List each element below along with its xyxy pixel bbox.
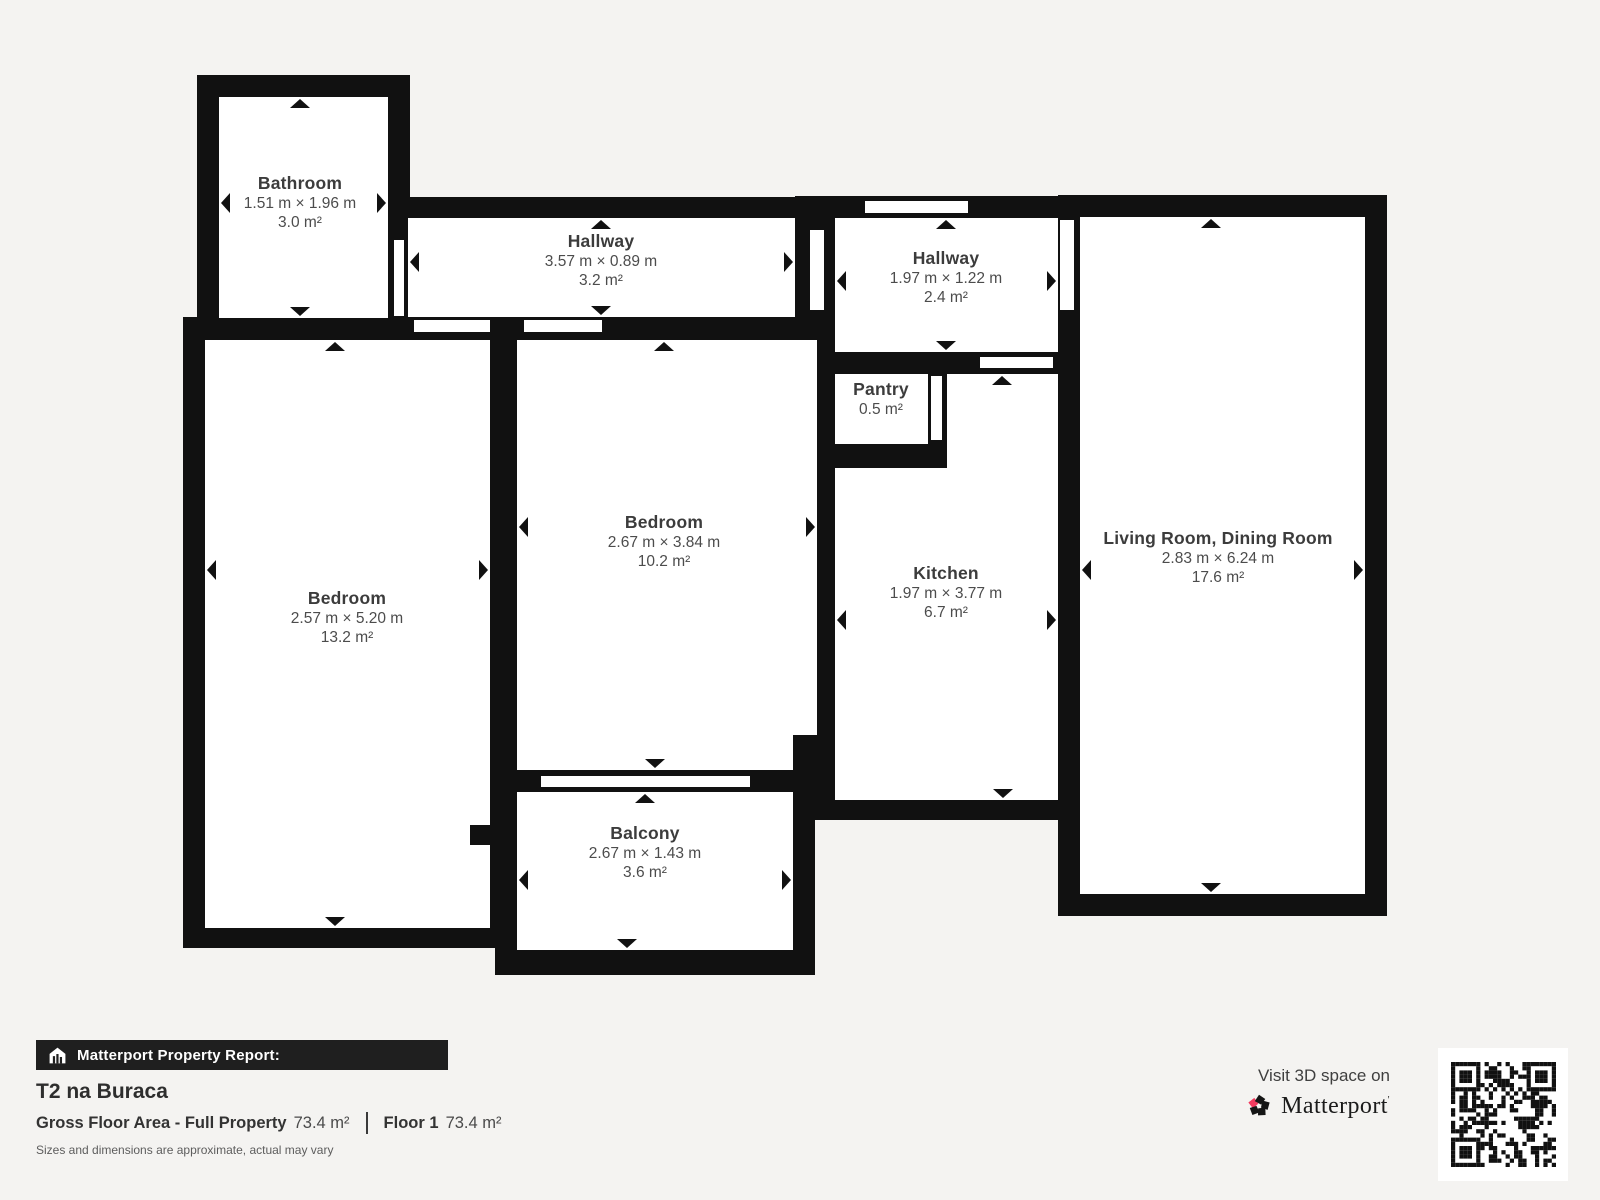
room-name: Kitchen xyxy=(890,563,1002,584)
room-area: 3.6 m² xyxy=(589,863,701,882)
room-name: Hallway xyxy=(545,231,657,252)
room-label-hallway-right: Hallway 1.97 m × 1.22 m 2.4 m² xyxy=(890,248,1002,307)
room-dims: 2.67 m × 3.84 m xyxy=(608,533,720,552)
floor-plan-rooms xyxy=(205,97,1365,950)
room-area: 2.4 m² xyxy=(890,288,1002,307)
room-dims: 1.97 m × 3.77 m xyxy=(890,584,1002,603)
room-dims: 3.57 m × 0.89 m xyxy=(545,252,657,271)
floor-label: Floor 1 xyxy=(384,1114,439,1133)
room-name: Pantry xyxy=(853,379,909,400)
room-area: 10.2 m² xyxy=(608,552,720,571)
room-area: 3.2 m² xyxy=(545,271,657,290)
meta-divider xyxy=(366,1112,368,1134)
visit-3d-space-text: Visit 3D space on xyxy=(1245,1066,1390,1086)
room-label-hallway-top: Hallway 3.57 m × 0.89 m 3.2 m² xyxy=(545,231,657,290)
room-dims: 2.57 m × 5.20 m xyxy=(291,609,403,628)
report-banner-label: Matterport Property Report: xyxy=(77,1047,280,1064)
matterport-pinwheel-icon xyxy=(1245,1092,1273,1120)
room-name: Bedroom xyxy=(291,588,403,609)
room-label-pantry: Pantry 0.5 m² xyxy=(853,379,909,419)
room-label-bedroom-center: Bedroom 2.67 m × 3.84 m 10.2 m² xyxy=(608,512,720,571)
room-dims: 1.51 m × 1.96 m xyxy=(244,194,356,213)
gross-floor-area-value: 73.4 m² xyxy=(294,1114,350,1133)
property-name: T2 na Buraca xyxy=(36,1080,168,1104)
room-area: 17.6 m² xyxy=(1103,568,1332,587)
room-dims: 1.97 m × 1.22 m xyxy=(890,269,1002,288)
property-report-page: Bathroom 1.51 m × 1.96 m 3.0 m² Hallway … xyxy=(0,0,1600,1200)
gross-floor-area-label: Gross Floor Area - Full Property xyxy=(36,1114,287,1133)
room-dims: 2.67 m × 1.43 m xyxy=(589,844,701,863)
room-label-bedroom-left: Bedroom 2.57 m × 5.20 m 13.2 m² xyxy=(291,588,403,647)
room-name: Balcony xyxy=(589,823,701,844)
room-label-living-room: Living Room, Dining Room 2.83 m × 6.24 m… xyxy=(1103,528,1332,587)
room-area: 6.7 m² xyxy=(890,603,1002,622)
report-banner: Matterport Property Report: xyxy=(36,1040,448,1070)
room-name: Hallway xyxy=(890,248,1002,269)
room-label-balcony: Balcony 2.67 m × 1.43 m 3.6 m² xyxy=(589,823,701,882)
matterport-trademark: ' xyxy=(1388,1095,1390,1106)
room-area: 13.2 m² xyxy=(291,628,403,647)
room-name: Bedroom xyxy=(608,512,720,533)
matterport-wordmark: Matterport' xyxy=(1281,1093,1390,1120)
house-chart-icon xyxy=(48,1046,67,1065)
matterport-brand-row[interactable]: Matterport' xyxy=(1245,1092,1390,1120)
room-dims: 2.83 m × 6.24 m xyxy=(1103,549,1332,568)
room-area: 0.5 m² xyxy=(853,400,909,419)
room-name: Living Room, Dining Room xyxy=(1103,528,1332,549)
qr-card xyxy=(1438,1048,1568,1181)
room-name: Bathroom xyxy=(244,173,356,194)
report-meta: Gross Floor Area - Full Property 73.4 m²… xyxy=(36,1112,502,1134)
floor-value: 73.4 m² xyxy=(446,1114,502,1133)
disclaimer-text: Sizes and dimensions are approximate, ac… xyxy=(36,1143,333,1157)
room-label-bathroom: Bathroom 1.51 m × 1.96 m 3.0 m² xyxy=(244,173,356,232)
visit-3d-space-cta[interactable]: Visit 3D space on Matterport' xyxy=(1245,1066,1390,1120)
room-label-kitchen: Kitchen 1.97 m × 3.77 m 6.7 m² xyxy=(890,563,1002,622)
room-area: 3.0 m² xyxy=(244,213,356,232)
qr-code xyxy=(1451,1062,1556,1167)
floor-plan xyxy=(0,0,1600,1010)
floor-plan-wall-step xyxy=(470,825,495,845)
